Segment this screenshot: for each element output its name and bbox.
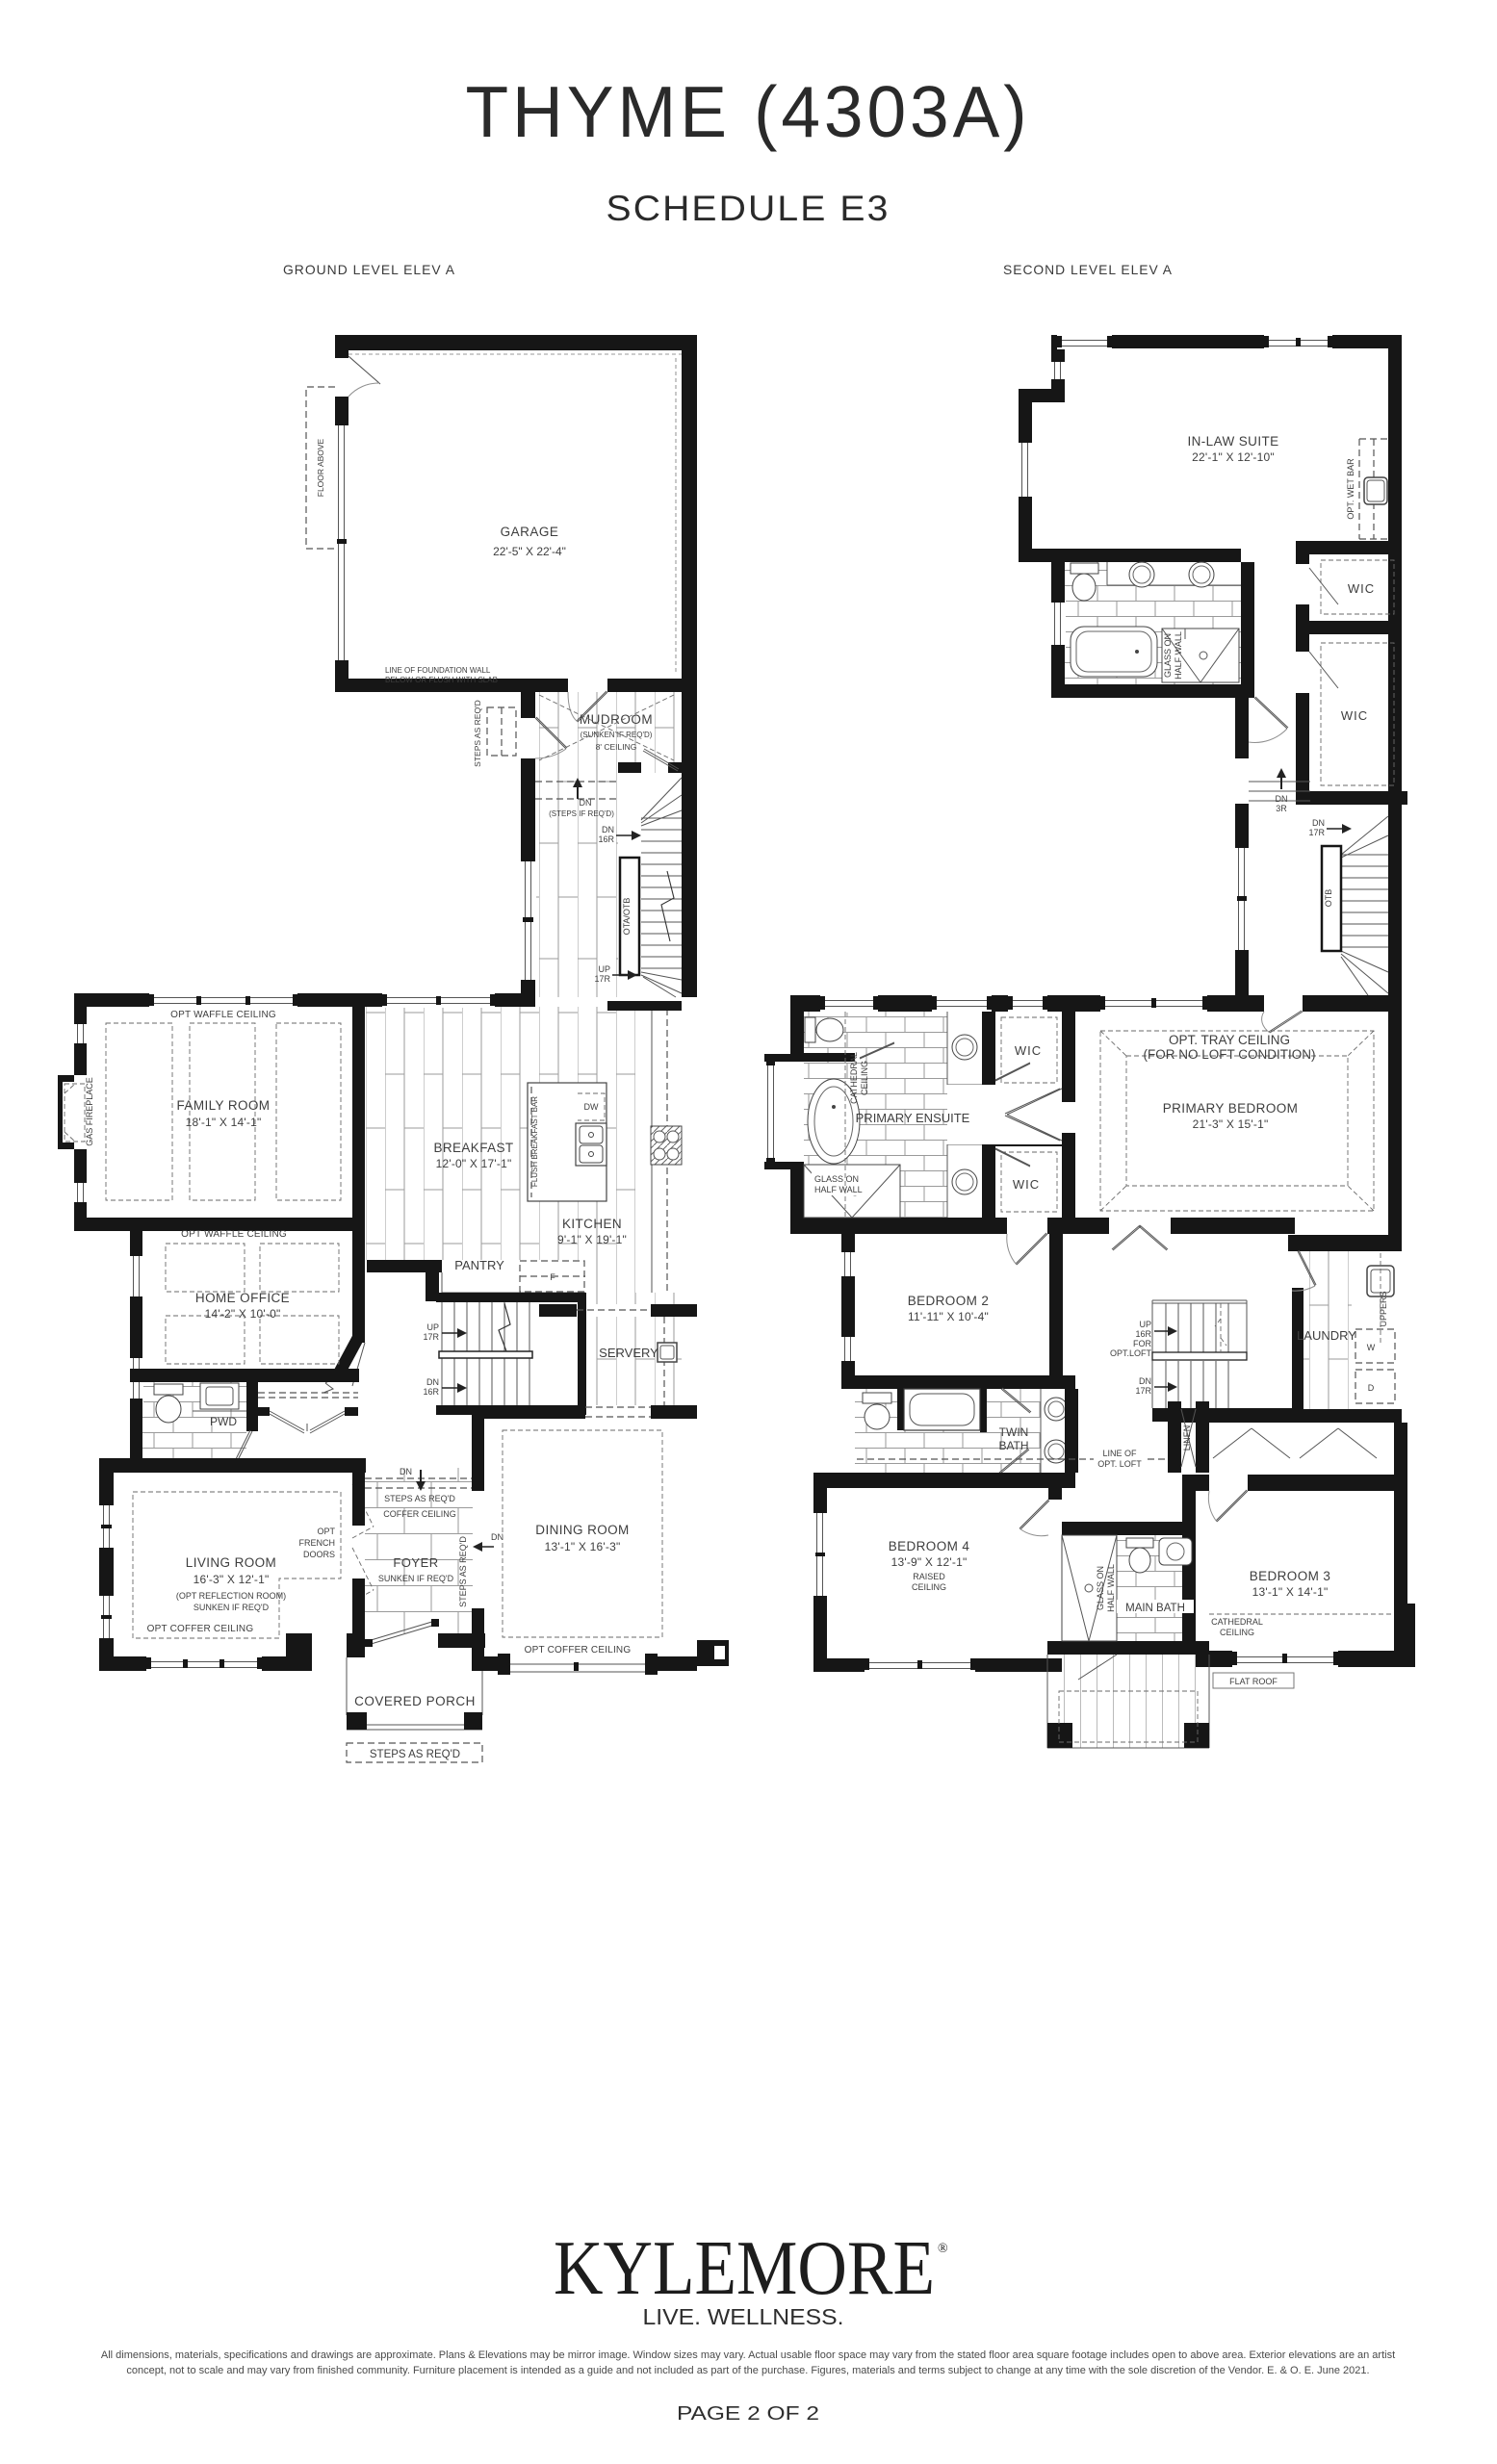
- svg-text:DN: DN: [580, 798, 592, 808]
- svg-text:OPT: OPT: [317, 1527, 335, 1536]
- svg-text:PRIMARY BEDROOM: PRIMARY BEDROOM: [1163, 1101, 1299, 1116]
- svg-text:OTA/OTB: OTA/OTB: [622, 898, 632, 936]
- svg-text:13'-1" X 16'-3": 13'-1" X 16'-3": [545, 1540, 621, 1553]
- svg-text:MAIN BATH: MAIN BATH: [1125, 1603, 1185, 1614]
- svg-text:CEILING: CEILING: [1220, 1628, 1254, 1637]
- svg-text:FAMILY ROOM: FAMILY ROOM: [177, 1098, 271, 1113]
- svg-text:OPT.LOFT: OPT.LOFT: [1110, 1348, 1152, 1358]
- svg-text:UP: UP: [598, 964, 610, 974]
- svg-text:F: F: [550, 1272, 555, 1282]
- svg-text:(STEPS IF REQ'D): (STEPS IF REQ'D): [549, 809, 614, 818]
- svg-text:WIC: WIC: [1013, 1177, 1040, 1192]
- svg-text:SERVERY: SERVERY: [599, 1346, 658, 1360]
- svg-text:16R: 16R: [423, 1387, 439, 1397]
- svg-text:(FOR NO LOFT CONDITION): (FOR NO LOFT CONDITION): [1144, 1047, 1316, 1062]
- svg-text:FLOOR ABOVE: FLOOR ABOVE: [316, 438, 325, 497]
- svg-text:HOME OFFICE: HOME OFFICE: [195, 1291, 290, 1305]
- svg-text:GAS FIREPLACE: GAS FIREPLACE: [85, 1077, 94, 1146]
- svg-text:DINING ROOM: DINING ROOM: [535, 1523, 629, 1537]
- svg-text:OPT COFFER CEILING: OPT COFFER CEILING: [525, 1645, 632, 1655]
- svg-text:CEILING: CEILING: [912, 1582, 946, 1592]
- svg-text:DOORS: DOORS: [303, 1550, 335, 1559]
- svg-text:KITCHEN: KITCHEN: [562, 1217, 622, 1231]
- svg-text:16R: 16R: [598, 834, 614, 844]
- svg-text:13'-1" X 14'-1": 13'-1" X 14'-1": [1252, 1585, 1329, 1599]
- svg-text:OPT WAFFLE CEILING: OPT WAFFLE CEILING: [181, 1229, 287, 1240]
- svg-text:FLUSH BREAKFAST BAR: FLUSH BREAKFAST BAR: [530, 1096, 539, 1187]
- svg-text:FLAT ROOF: FLAT ROOF: [1229, 1677, 1278, 1686]
- svg-text:GLASS ON: GLASS ON: [1096, 1566, 1105, 1610]
- svg-text:OTB: OTB: [1324, 889, 1333, 908]
- svg-text:SECOND LEVEL ELEV A: SECOND LEVEL ELEV A: [1003, 262, 1173, 277]
- svg-text:(SUNKEN IF REQ'D): (SUNKEN IF REQ'D): [581, 731, 653, 739]
- svg-text:OPT. LOFT: OPT. LOFT: [1097, 1459, 1142, 1469]
- svg-text:SCHEDULE E3: SCHEDULE E3: [607, 189, 890, 228]
- svg-text:22'-1" X 12'-10": 22'-1" X 12'-10": [1192, 450, 1275, 464]
- svg-text:CATHEDRAL: CATHEDRAL: [1211, 1617, 1263, 1627]
- svg-text:BEDROOM 4: BEDROOM 4: [889, 1539, 970, 1553]
- svg-text:DN: DN: [491, 1532, 503, 1542]
- svg-text:LIVE. WELLNESS.: LIVE. WELLNESS.: [643, 2304, 844, 2329]
- svg-text:FOR: FOR: [1133, 1339, 1151, 1348]
- svg-text:WIC: WIC: [1015, 1043, 1042, 1058]
- svg-text:GROUND LEVEL ELEV A: GROUND LEVEL ELEV A: [283, 262, 455, 277]
- svg-text:LINEN: LINEN: [1182, 1425, 1192, 1451]
- svg-text:STEPS AS REQ'D: STEPS AS REQ'D: [458, 1536, 468, 1607]
- svg-text:PANTRY: PANTRY: [454, 1258, 504, 1272]
- svg-text:18'-1" X 14'-1": 18'-1" X 14'-1": [186, 1116, 262, 1129]
- svg-text:WIC: WIC: [1348, 581, 1375, 596]
- svg-text:DN: DN: [1312, 818, 1325, 828]
- svg-text:3R: 3R: [1276, 804, 1287, 813]
- svg-text:9'-1" X 19'-1": 9'-1" X 19'-1": [557, 1233, 627, 1246]
- svg-text:DN: DN: [1139, 1376, 1151, 1386]
- svg-text:BATH: BATH: [998, 1439, 1028, 1452]
- svg-text:12'-0" X 17'-1": 12'-0" X 17'-1": [436, 1157, 512, 1170]
- svg-text:FRENCH: FRENCH: [299, 1538, 336, 1548]
- svg-text:GLASS ON: GLASS ON: [1163, 633, 1173, 678]
- svg-text:LAUNDRY: LAUNDRY: [1297, 1328, 1356, 1343]
- svg-text:17R: 17R: [1135, 1386, 1151, 1396]
- svg-text:16'-3" X 12'-1": 16'-3" X 12'-1": [194, 1573, 270, 1586]
- svg-text:W: W: [1367, 1343, 1376, 1352]
- svg-text:WIC: WIC: [1341, 708, 1368, 723]
- svg-text:concept, not to scale and may: concept, not to scale and may vary from …: [126, 2365, 1369, 2376]
- svg-text:BREAKFAST: BREAKFAST: [433, 1141, 513, 1155]
- svg-text:SUNKEN IF REQ'D: SUNKEN IF REQ'D: [194, 1603, 270, 1612]
- svg-text:DW: DW: [584, 1102, 599, 1112]
- svg-text:HALF WALL: HALF WALL: [1106, 1564, 1116, 1612]
- svg-text:17R: 17R: [1308, 828, 1325, 837]
- svg-text:TWIN: TWIN: [999, 1425, 1029, 1439]
- svg-text:RAISED: RAISED: [913, 1572, 945, 1581]
- svg-text:COFFER CEILING: COFFER CEILING: [383, 1509, 456, 1519]
- svg-text:BEDROOM 3: BEDROOM 3: [1250, 1569, 1331, 1583]
- svg-text:UP: UP: [1139, 1320, 1151, 1329]
- svg-text:OPT WAFFLE CEILING: OPT WAFFLE CEILING: [170, 1010, 276, 1020]
- svg-text:22'-5" X 22'-4": 22'-5" X 22'-4": [493, 545, 566, 558]
- svg-text:DN: DN: [1276, 794, 1288, 804]
- svg-text:DN: DN: [602, 825, 614, 834]
- svg-text:IN-LAW SUITE: IN-LAW SUITE: [1187, 434, 1278, 449]
- svg-text:HALF WALL: HALF WALL: [1174, 631, 1183, 680]
- svg-text:STEPS AS REQ'D: STEPS AS REQ'D: [384, 1494, 455, 1503]
- svg-text:UP: UP: [426, 1322, 439, 1332]
- svg-text:PRIMARY ENSUITE: PRIMARY ENSUITE: [856, 1111, 970, 1125]
- svg-text:DN: DN: [426, 1377, 439, 1387]
- svg-text:COVERED PORCH: COVERED PORCH: [354, 1694, 476, 1708]
- svg-text:PWD: PWD: [210, 1415, 237, 1428]
- svg-text:THYME (4303A): THYME (4303A): [466, 71, 1031, 152]
- svg-text:STEPS AS REQ'D: STEPS AS REQ'D: [370, 1749, 460, 1760]
- svg-text:OPT. WET BAR: OPT. WET BAR: [1346, 458, 1355, 520]
- svg-text:KYLEMORE: KYLEMORE: [554, 2226, 935, 2311]
- svg-text:PAGE 2 OF 2: PAGE 2 OF 2: [677, 2403, 819, 2425]
- svg-text:CEILING: CEILING: [860, 1061, 869, 1095]
- svg-text:HALF WALL: HALF WALL: [814, 1185, 863, 1194]
- svg-text:LINE OF: LINE OF: [1102, 1449, 1137, 1458]
- svg-text:(OPT REFLECTION ROOM): (OPT REFLECTION ROOM): [176, 1591, 286, 1601]
- svg-text:GARAGE: GARAGE: [501, 525, 559, 539]
- svg-text:11'-11" X 10'-4": 11'-11" X 10'-4": [908, 1310, 989, 1323]
- svg-text:13'-9" X 12'-1": 13'-9" X 12'-1": [891, 1555, 968, 1569]
- svg-text:BEDROOM 2: BEDROOM 2: [908, 1294, 990, 1308]
- svg-text:All dimensions, materials, spe: All dimensions, materials, specification…: [101, 2349, 1395, 2361]
- svg-text:FOYER: FOYER: [393, 1555, 438, 1570]
- svg-text:17R: 17R: [594, 974, 610, 984]
- svg-text:STEPS AS REQ'D: STEPS AS REQ'D: [473, 700, 482, 767]
- svg-text:16R: 16R: [1135, 1329, 1151, 1339]
- svg-text:D: D: [1368, 1383, 1375, 1393]
- svg-text:DN: DN: [400, 1467, 412, 1476]
- svg-text:BELOW OR FLUSH WITH SLAB: BELOW OR FLUSH WITH SLAB: [385, 676, 498, 684]
- svg-text:21'-3" X 15'-1": 21'-3" X 15'-1": [1193, 1117, 1269, 1131]
- svg-text:OPT COFFER CEILING: OPT COFFER CEILING: [147, 1624, 254, 1634]
- svg-text:17R: 17R: [423, 1332, 439, 1342]
- svg-text:SUNKEN IF REQ'D: SUNKEN IF REQ'D: [378, 1574, 454, 1583]
- svg-text:8' CEILING: 8' CEILING: [596, 742, 637, 752]
- svg-text:UPPERS: UPPERS: [1379, 1291, 1388, 1326]
- svg-text:GLASS ON: GLASS ON: [814, 1174, 859, 1184]
- svg-text:LIVING ROOM: LIVING ROOM: [186, 1555, 276, 1570]
- svg-text:®: ®: [938, 2242, 948, 2256]
- svg-text:CATHEDRAL: CATHEDRAL: [849, 1052, 859, 1104]
- svg-text:OPT. TRAY CEILING: OPT. TRAY CEILING: [1169, 1033, 1290, 1047]
- svg-text:14'-2" X 10'-0": 14'-2" X 10'-0": [205, 1307, 281, 1321]
- svg-text:LINE OF FOUNDATION WALL: LINE OF FOUNDATION WALL: [385, 666, 491, 675]
